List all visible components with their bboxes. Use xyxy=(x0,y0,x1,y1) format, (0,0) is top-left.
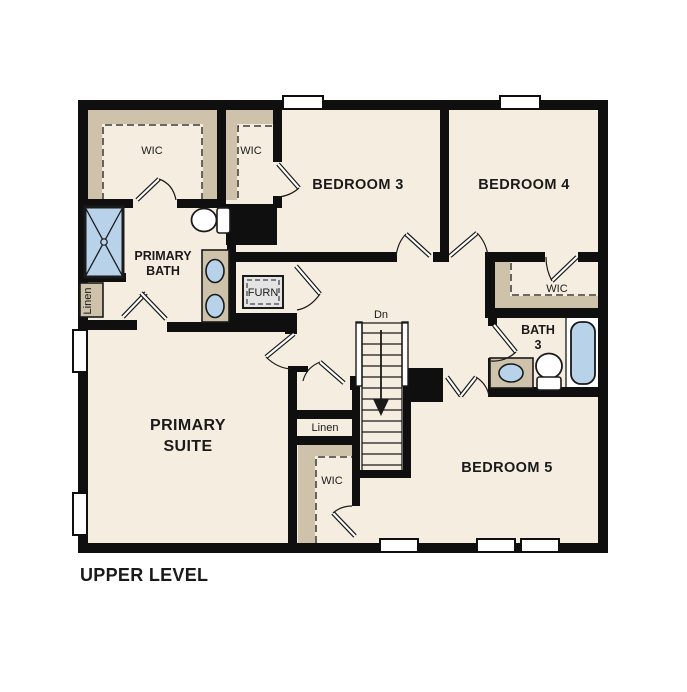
label-bath3-1: BATH xyxy=(521,323,555,337)
window-left-suite-2 xyxy=(73,493,87,535)
toilet-primary-bath xyxy=(192,208,231,233)
floor-plan-drawing: WIC WIC BEDROOM 3 BEDROOM 4 PRIMARY BATH… xyxy=(0,0,687,687)
window-bottom-2 xyxy=(477,539,515,552)
window-bottom-1 xyxy=(380,539,418,552)
label-bedroom4: BEDROOM 4 xyxy=(478,177,569,193)
label-primary-wic: WIC xyxy=(141,145,162,157)
plan-title: UPPER LEVEL xyxy=(80,565,208,585)
window-bottom-3 xyxy=(521,539,559,552)
vanity-bath3 xyxy=(490,358,533,388)
window-left-suite-1 xyxy=(73,330,87,372)
sink-icon xyxy=(206,260,224,283)
label-bath3-2: 3 xyxy=(535,338,542,352)
bathtub xyxy=(566,318,598,387)
label-primary-bath-1: PRIMARY xyxy=(134,249,192,263)
label-bedroom4-wic: WIC xyxy=(546,283,567,295)
toilet-bath3 xyxy=(536,354,562,391)
label-wic2: WIC xyxy=(240,145,261,157)
label-dn: Dn xyxy=(374,309,388,321)
chase-block-stairs xyxy=(407,368,443,402)
label-primary-bath-2: BATH xyxy=(146,264,180,278)
label-bedroom5: BEDROOM 5 xyxy=(461,460,552,476)
window-top-bedroom3 xyxy=(283,96,323,109)
shower xyxy=(85,207,123,277)
label-primary-suite-2: SUITE xyxy=(163,438,212,455)
label-bedroom3: BEDROOM 3 xyxy=(312,177,403,193)
label-linen-mid: Linen xyxy=(312,422,339,434)
sink-icon xyxy=(206,295,224,318)
floor-plan: WIC WIC BEDROOM 3 BEDROOM 4 PRIMARY BATH… xyxy=(0,0,687,687)
label-linen-left: Linen xyxy=(82,288,94,315)
label-mid-wic: WIC xyxy=(321,475,342,487)
label-furn: FURN xyxy=(248,287,279,299)
label-primary-suite-1: PRIMARY xyxy=(150,417,226,434)
chase-block-top xyxy=(226,204,277,245)
window-top-bedroom4 xyxy=(500,96,540,109)
sink-icon xyxy=(499,364,523,382)
vanity-primary-bath xyxy=(202,250,229,322)
